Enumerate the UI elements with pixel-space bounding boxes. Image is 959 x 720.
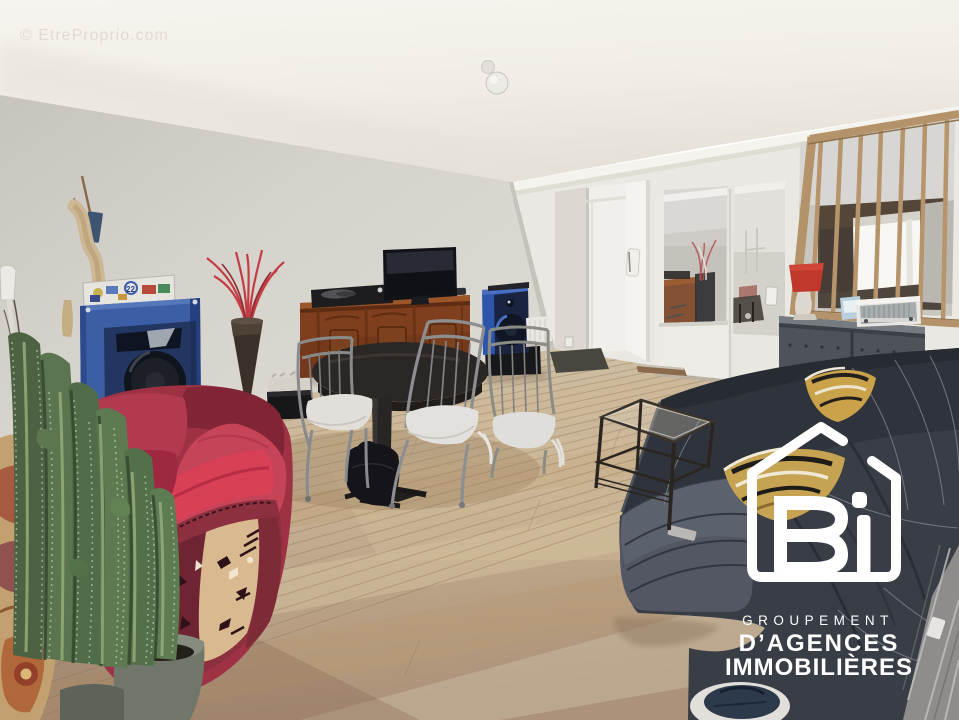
- svg-text:D’AGENCES: D’AGENCES: [739, 630, 900, 657]
- svg-text:IMMOBILIÈRES: IMMOBILIÈRES: [725, 653, 913, 681]
- svg-text:22: 22: [126, 285, 135, 294]
- svg-text:© EtreProprio.com: © EtreProprio.com: [20, 27, 169, 44]
- svg-text:GROUPEMENT: GROUPEMENT: [742, 613, 894, 628]
